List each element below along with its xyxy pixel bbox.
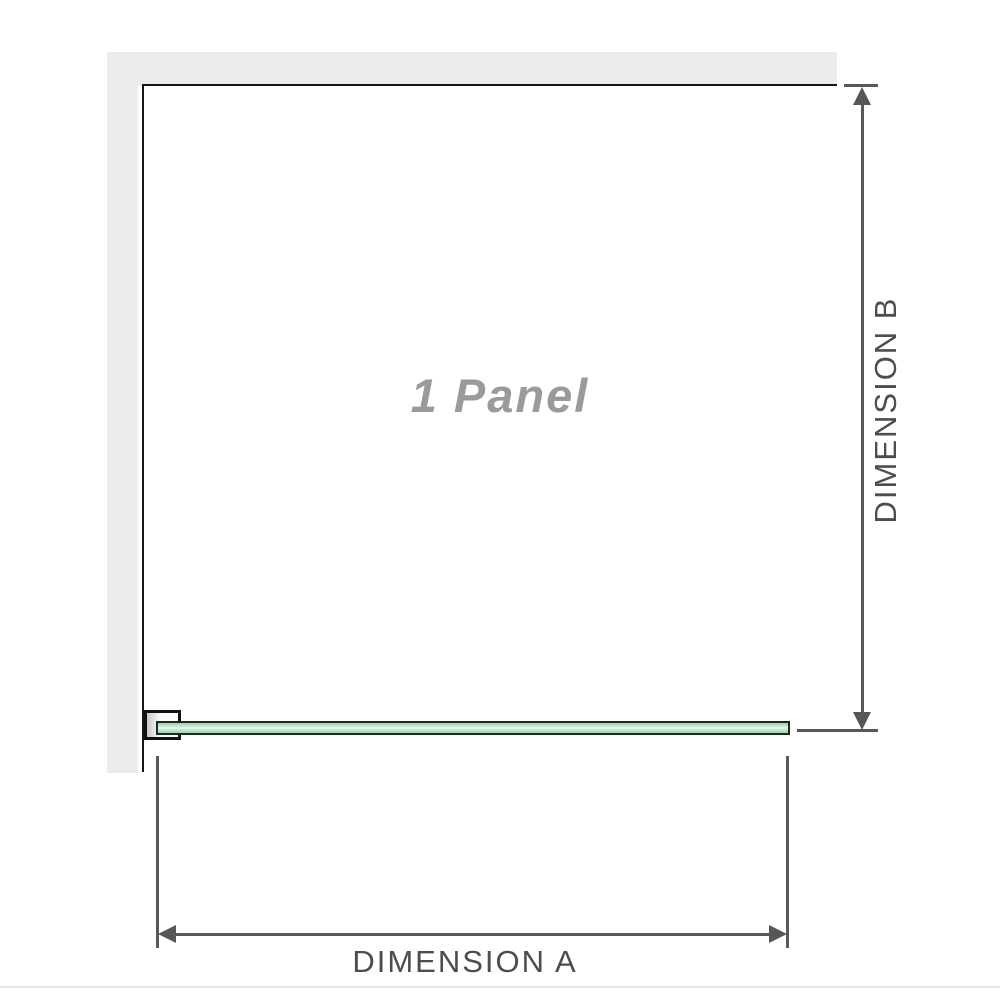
wall-left-segment — [107, 52, 138, 773]
panel-count-watermark: 1 Panel — [320, 368, 680, 423]
enclosure-outline-left — [142, 84, 144, 772]
dimension-a-extension-left — [156, 756, 159, 948]
arrow-down-icon — [853, 712, 871, 730]
glass-panel — [156, 721, 790, 735]
diagram-canvas: 1 Panel DIMENSION B DIMENSION A — [0, 0, 1000, 1000]
arrow-right-icon — [769, 925, 787, 943]
dimension-b-label: DIMENSION B — [868, 210, 904, 610]
dimension-a-extension-right — [786, 756, 789, 948]
enclosure-outline-top — [142, 84, 837, 86]
dimension-a-label: DIMENSION A — [265, 944, 665, 980]
dimension-b-line — [861, 100, 864, 718]
arrow-up-icon — [853, 87, 871, 105]
arrow-left-icon — [158, 925, 176, 943]
bottom-edge-line — [0, 986, 1000, 988]
wall-top-segment — [107, 52, 837, 86]
dimension-a-line — [170, 933, 775, 936]
